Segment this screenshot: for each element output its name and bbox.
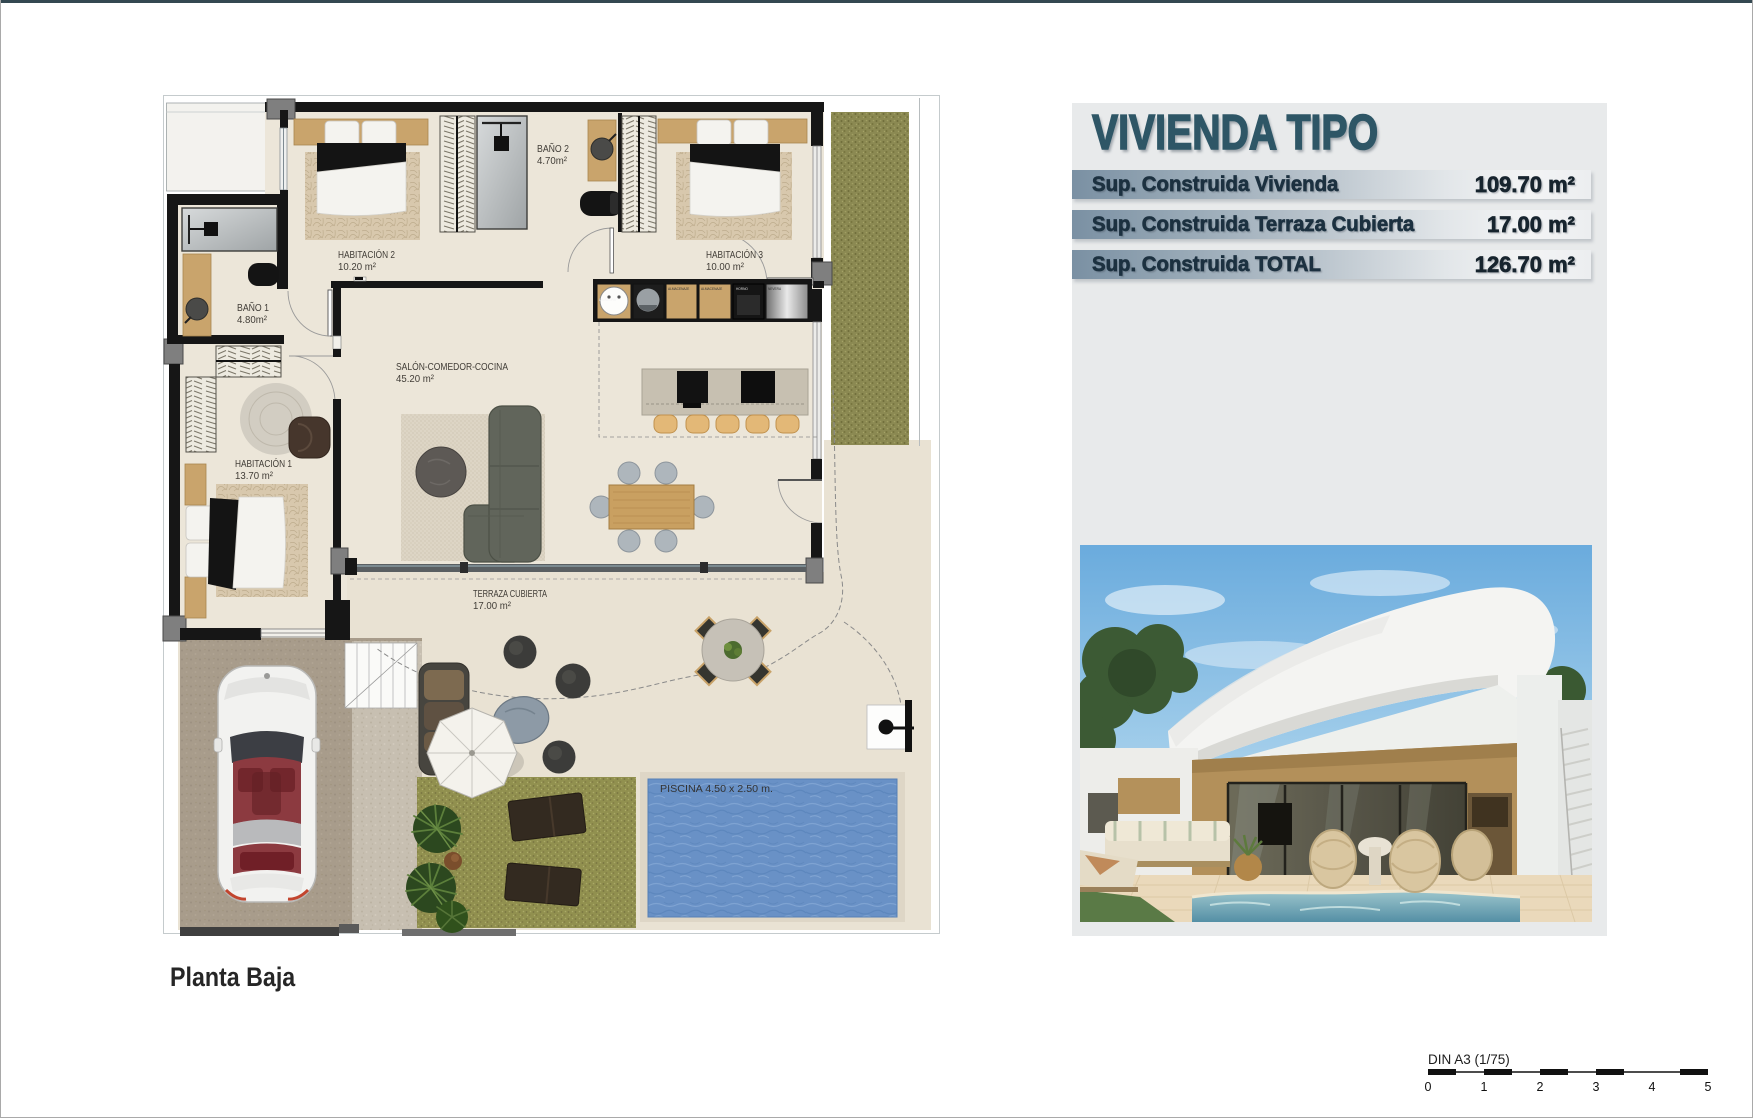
svg-text:ALMACENAJE: ALMACENAJE: [668, 287, 689, 291]
svg-text:HABITACIÓN 2: HABITACIÓN 2: [338, 248, 395, 261]
svg-text:0: 0: [1425, 1080, 1432, 1094]
svg-text:ALMACENAJE: ALMACENAJE: [701, 287, 722, 291]
svg-text:BAÑO 2: BAÑO 2: [537, 142, 569, 155]
svg-text:3: 3: [1593, 1080, 1600, 1094]
svg-text:BAÑO 1: BAÑO 1: [237, 301, 269, 314]
svg-text:5: 5: [1705, 1080, 1712, 1094]
svg-text:4.70m²: 4.70m²: [537, 155, 567, 167]
svg-text:1: 1: [1481, 1080, 1488, 1094]
svg-text:17.00 m²: 17.00 m²: [473, 600, 511, 612]
svg-text:TERRAZA CUBIERTA: TERRAZA CUBIERTA: [473, 588, 547, 600]
svg-text:NEVERA: NEVERA: [768, 287, 782, 291]
svg-text:10.00 m²: 10.00 m²: [706, 261, 744, 273]
svg-text:13.70 m²: 13.70 m²: [235, 470, 273, 482]
svg-text:HORNO: HORNO: [736, 287, 748, 291]
svg-text:LAVADORA: LAVADORA: [599, 298, 617, 302]
svg-text:PISCINA 4.50 x 2.50 m.: PISCINA 4.50 x 2.50 m.: [660, 784, 773, 795]
svg-text:HABITACIÓN 3: HABITACIÓN 3: [706, 248, 763, 261]
svg-text:SALÓN-COMEDOR-COCINA: SALÓN-COMEDOR-COCINA: [396, 360, 508, 373]
svg-text:HABITACIÓN 1: HABITACIÓN 1: [235, 457, 292, 470]
svg-text:4: 4: [1649, 1080, 1656, 1094]
svg-text:45.20 m²: 45.20 m²: [396, 373, 434, 385]
svg-text:10.20 m²: 10.20 m²: [338, 261, 376, 273]
svg-text:2: 2: [1537, 1080, 1544, 1094]
svg-text:4.80m²: 4.80m²: [237, 314, 267, 326]
